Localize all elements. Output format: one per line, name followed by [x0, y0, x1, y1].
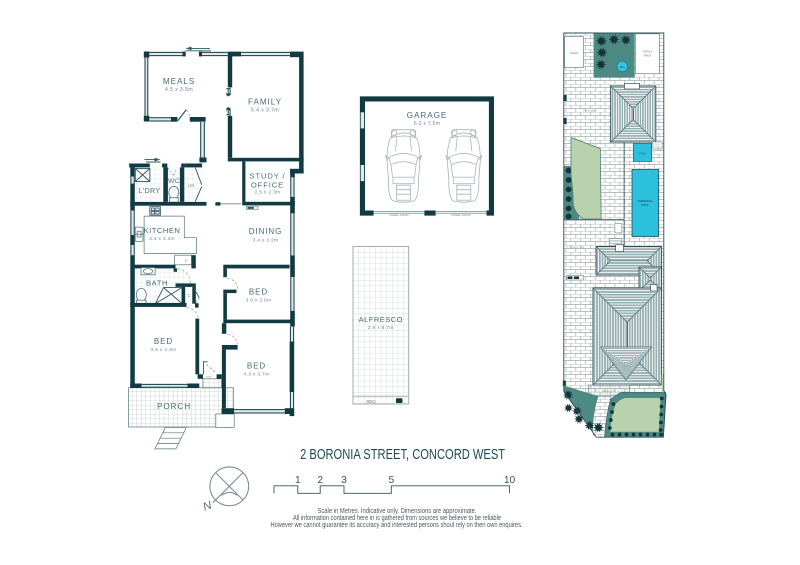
svg-text:Scale in Metres. Indicative on: Scale in Metres. Indicative only. Dimens… — [318, 508, 477, 515]
svg-text:2 BORONIA STREET, CONCORD WEST: 2 BORONIA STREET, CONCORD WEST — [300, 447, 505, 463]
svg-text:POOL: POOL — [641, 203, 649, 207]
svg-text:3.3 x 3.3m: 3.3 x 3.3m — [149, 236, 175, 242]
svg-text:DINING: DINING — [249, 227, 282, 236]
svg-text:1: 1 — [295, 475, 301, 486]
svg-text:BED: BED — [154, 337, 173, 346]
svg-text:GYM: GYM — [639, 151, 646, 155]
svg-text:LIN: LIN — [188, 183, 195, 188]
svg-text:L'DRY: L'DRY — [139, 188, 161, 195]
svg-text:BBQ: BBQ — [366, 399, 376, 404]
svg-text:2.5 x 2.3m: 2.5 x 2.3m — [255, 190, 281, 196]
svg-text:wdw: wdw — [206, 374, 211, 378]
svg-text:BED: BED — [249, 288, 268, 297]
svg-text:WC: WC — [168, 178, 180, 185]
svg-text:5: 5 — [388, 475, 394, 486]
svg-text:KITCHEN: KITCHEN — [144, 226, 181, 235]
svg-text:MEALS: MEALS — [163, 77, 195, 86]
svg-text:PORCH: PORCH — [603, 389, 614, 393]
svg-text:3.0 x 3.6m: 3.0 x 3.6m — [246, 298, 272, 304]
svg-text:3: 3 — [341, 475, 347, 486]
svg-text:STUDY /: STUDY / — [249, 172, 285, 181]
svg-text:All information contained here: All information contained here in is gat… — [293, 515, 501, 522]
svg-text:CLOTHES LINE: CLOTHES LINE — [566, 246, 585, 250]
svg-text:PANEL DOOR: PANEL DOOR — [389, 213, 409, 217]
svg-text:2: 2 — [317, 475, 323, 486]
svg-text:3.4 x 3.2m: 3.4 x 3.2m — [253, 238, 279, 244]
svg-text:BATH: BATH — [146, 279, 168, 288]
svg-text:5.4 x 3.7m: 5.4 x 3.7m — [251, 108, 279, 114]
svg-text:10: 10 — [504, 475, 516, 486]
svg-text:C: C — [187, 293, 190, 298]
svg-text:AREA: AREA — [644, 54, 652, 58]
svg-text:4.5 x 3.5m: 4.5 x 3.5m — [165, 87, 193, 93]
svg-text:BED: BED — [247, 362, 266, 371]
svg-text:PANEL DOOR: PANEL DOOR — [451, 213, 471, 217]
svg-text:PORCH: PORCH — [157, 402, 191, 411]
svg-text:2.9 x 8.7m: 2.9 x 8.7m — [368, 325, 394, 331]
svg-text:ALFRESCO: ALFRESCO — [359, 315, 403, 324]
svg-text:PUMP: PUMP — [655, 146, 661, 148]
svg-text:3.5 x 4.3m: 3.5 x 4.3m — [151, 347, 177, 353]
svg-text:However we cannot guarantee it: However we cannot guarantee its accuracy… — [271, 522, 523, 529]
svg-text:F: F — [185, 259, 188, 264]
svg-text:GARAGE: GARAGE — [407, 111, 447, 120]
svg-text:SPA: SPA — [620, 65, 625, 69]
svg-text:SHED: SHED — [570, 51, 579, 55]
svg-text:Driveway: Driveway — [583, 109, 596, 113]
svg-text:6.0 x 7.6m: 6.0 x 7.6m — [414, 121, 440, 127]
svg-text:FAMILY: FAMILY — [248, 98, 282, 107]
svg-text:OFFICE: OFFICE — [251, 181, 284, 190]
svg-text:4.3 x 3.7m: 4.3 x 3.7m — [244, 372, 270, 378]
